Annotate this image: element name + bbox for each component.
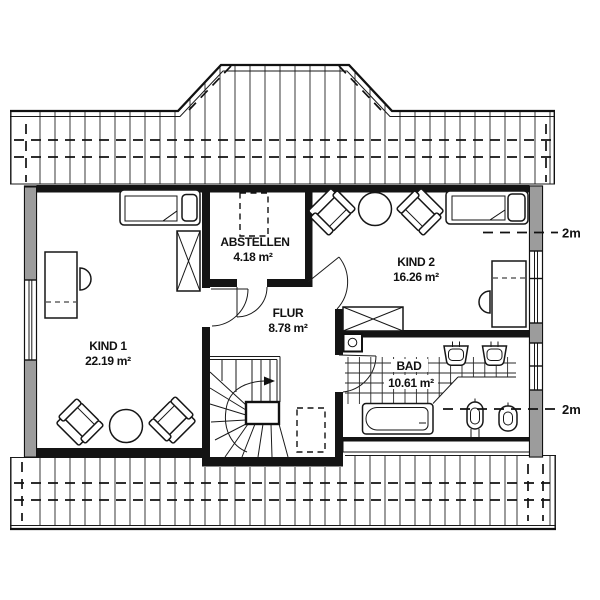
wall-bad-bottom-inner <box>343 437 530 441</box>
door-kind2 <box>308 257 348 309</box>
masonry-east-lower <box>530 390 543 457</box>
washbasin <box>444 342 468 366</box>
room-name-kind2: KIND 2 <box>397 255 435 269</box>
roof-hatch-top <box>10 60 555 184</box>
skylight-flur <box>297 408 325 452</box>
door-abstellen <box>237 287 267 317</box>
room-area-abstellen: 4.18 m² <box>233 250 273 264</box>
room-area-kind2: 16.26 m² <box>393 270 439 284</box>
wall-flur-east-lower <box>335 392 343 458</box>
room-name-flur: FLUR <box>273 306 304 320</box>
wall-flur-bottom <box>202 457 343 467</box>
masonry-east-upper <box>530 186 543 251</box>
desk-chair <box>80 268 91 290</box>
floorplan: 2m 2m KIND 1 22.19 m² ABSTELLEN 4.18 m² … <box>0 0 600 600</box>
bed <box>446 191 528 224</box>
bidet <box>499 403 517 432</box>
masonry-west-lower <box>25 360 37 457</box>
room-name-bad: BAD <box>396 359 422 373</box>
round-table <box>359 193 392 226</box>
desk <box>492 261 526 327</box>
roof-tile-hatch <box>40 60 550 184</box>
stair-newel <box>246 402 279 424</box>
room-area-flur: 8.78 m² <box>268 321 308 335</box>
armchair <box>148 396 197 445</box>
toilet <box>467 399 483 438</box>
desk <box>45 252 77 318</box>
wall-kind1-flur-upper <box>202 193 210 289</box>
armchair <box>396 186 445 235</box>
skylight-abstellen <box>240 193 268 236</box>
masonry-east-middle <box>530 323 543 343</box>
room-area-bad: 10.61 m² <box>388 376 434 390</box>
height-label-upper: 2m <box>562 226 581 241</box>
wall-bad-bottom-cavity <box>343 441 530 452</box>
roof-edge-inner <box>10 71 555 117</box>
wall-flur-east-upper <box>335 309 343 355</box>
round-table <box>110 410 143 443</box>
door-kind1 <box>211 289 248 326</box>
wall-kind1-flur-lower <box>202 327 210 467</box>
desk-chair <box>479 291 490 313</box>
dormer-dashed-right <box>339 66 381 110</box>
dormer-dashed-left <box>189 66 231 110</box>
wardrobe <box>177 231 200 291</box>
armchair <box>54 398 103 447</box>
staircase <box>210 357 288 458</box>
wardrobe <box>343 307 403 331</box>
wall-abstellen-east <box>305 193 313 283</box>
room-name-abstellen: ABSTELLEN <box>220 235 289 249</box>
chimney <box>344 334 363 352</box>
wall-abstellen-south-left <box>210 279 237 287</box>
bathtub <box>363 404 434 435</box>
armchair <box>306 186 355 235</box>
wall-abstellen-south-right <box>267 279 313 287</box>
height-label-lower: 2m <box>562 402 581 417</box>
masonry-west-upper <box>25 187 37 280</box>
bed <box>120 190 200 225</box>
washbasin <box>483 342 507 366</box>
room-name-kind1: KIND 1 <box>89 339 127 353</box>
room-area-kind1: 22.19 m² <box>85 354 131 368</box>
roof-edge-outer <box>10 65 555 111</box>
furniture-kind1 <box>45 190 200 448</box>
floorplan-drawing: 2m 2m KIND 1 22.19 m² ABSTELLEN 4.18 m² … <box>0 0 600 600</box>
wall-kind1-bottom <box>37 448 211 458</box>
